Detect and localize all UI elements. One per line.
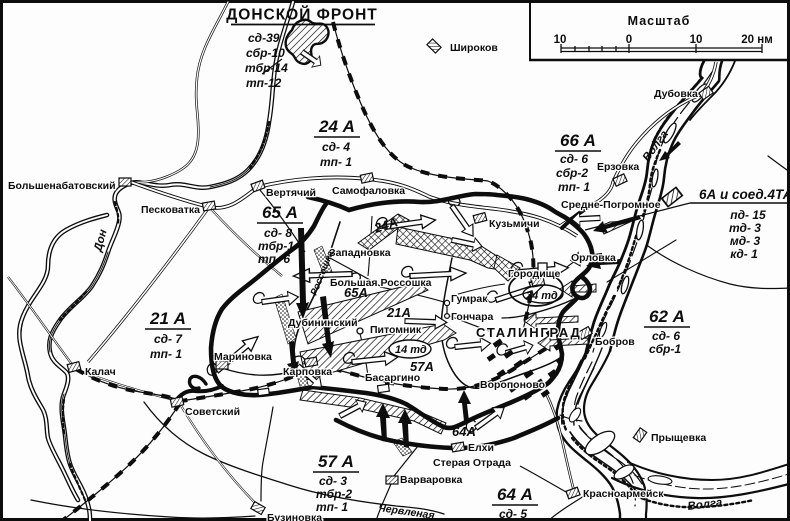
svg-text:Бузиновка: Бузиновка [267,512,322,521]
svg-text:Калач: Калач [85,366,116,378]
svg-text:Питомник: Питомник [370,324,422,336]
svg-text:64 А: 64 А [497,485,533,504]
svg-text:21 А: 21 А [149,309,186,328]
svg-text:Советский: Советский [185,406,240,418]
svg-text:мд- 3: мд- 3 [730,234,761,248]
svg-text:Городище: Городище [508,268,561,280]
svg-text:тп- 1: тп- 1 [150,347,182,361]
svg-text:Гумрак: Гумрак [451,293,488,305]
svg-text:Орловка: Орловка [571,252,616,264]
svg-text:Мариновка: Мариновка [214,351,272,363]
svg-text:Масштаб: Масштаб [628,14,691,28]
svg-text:62 А: 62 А [649,307,685,326]
svg-text:Карповка: Карповка [283,366,332,378]
svg-text:пд- 15: пд- 15 [730,208,766,222]
svg-text:сд- 4: сд- 4 [322,140,350,154]
svg-text:24 А: 24 А [318,117,355,136]
svg-text:тп-12: тп-12 [246,76,282,90]
svg-text:64А: 64А [452,424,476,439]
svg-text:тбр-2: тбр-2 [316,487,352,501]
svg-text:сд- 6: сд- 6 [652,329,680,343]
svg-text:сбр-1: сбр-1 [649,342,681,356]
svg-text:Стерая Отрада: Стерая Отрада [433,457,511,469]
svg-text:сбр-2: сбр-2 [556,166,588,180]
svg-text:Басаргино: Басаргино [365,372,420,384]
svg-text:сд- 6: сд- 6 [560,152,588,166]
svg-text:СТАЛИНГРАД: СТАЛИНГРАД [476,325,582,340]
svg-text:тп- 1: тп- 1 [558,180,590,194]
svg-text:ДОНСКОЙ ФРОНТ: ДОНСКОЙ ФРОНТ [226,6,378,24]
svg-text:65 А: 65 А [262,203,298,222]
svg-text:Прыщевка: Прыщевка [651,432,706,444]
svg-text:24 тд: 24 тд [525,290,558,302]
svg-text:57 А: 57 А [318,452,354,471]
svg-text:Ерзовка: Ерзовка [597,161,639,173]
svg-text:Дубининский: Дубининский [288,317,358,329]
svg-text:Елхи: Елхи [468,442,494,454]
svg-text:Вертячий: Вертячий [266,187,316,199]
svg-text:14 тд: 14 тд [395,344,427,356]
svg-text:66 А: 66 А [560,131,596,150]
svg-text:тбр-1: тбр-1 [258,239,294,253]
svg-text:тп- 6: тп- 6 [258,252,290,266]
svg-text:сбр-10: сбр-10 [246,46,285,60]
svg-text:Гончара: Гончара [451,311,494,323]
svg-text:20 нм: 20 нм [741,34,772,46]
svg-text:Воропоново: Воропоново [480,379,545,391]
svg-text:Песковатка: Песковатка [141,204,200,216]
svg-text:Самофаловка: Самофаловка [332,185,405,197]
svg-text:6А и соед.4ТА: 6А и соед.4ТА [699,187,790,202]
svg-text:Средне-Погромное: Средне-Погромное [561,199,661,211]
svg-text:сд- 7: сд- 7 [154,332,183,346]
svg-text:Западновка: Западновка [329,247,391,259]
svg-text:сд- 8: сд- 8 [264,226,292,240]
svg-text:10: 10 [554,34,567,46]
svg-text:21А: 21А [386,305,411,320]
svg-text:Широков: Широков [450,42,498,54]
svg-text:Кузьмичи: Кузьмичи [489,218,540,230]
svg-text:Большая Россошка: Большая Россошка [330,277,432,289]
svg-text:тбр-14: тбр-14 [245,61,288,75]
svg-text:Варваровка: Варваровка [400,474,463,486]
svg-text:сд- 3: сд- 3 [319,474,347,488]
svg-text:сд-39: сд-39 [248,31,280,45]
svg-text:Красноармейск: Красноармейск [583,488,664,500]
svg-text:Бобров: Бобров [595,336,635,348]
svg-text:Дубовка: Дубовка [654,88,698,100]
svg-text:кд- 1: кд- 1 [730,247,758,261]
svg-text:Большенабатовский: Большенабатовский [8,180,116,192]
svg-text:сд- 5: сд- 5 [499,507,527,521]
svg-text:тд- 3: тд- 3 [729,221,761,235]
svg-text:тп- 1: тп- 1 [320,155,352,169]
